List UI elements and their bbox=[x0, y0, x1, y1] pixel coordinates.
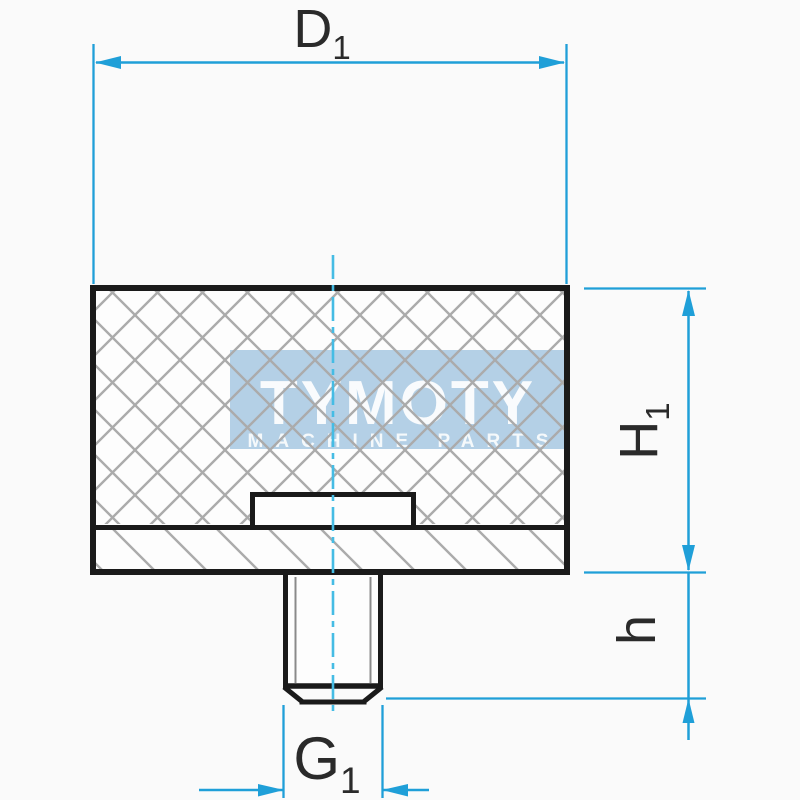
dimension-g1: G1 bbox=[199, 705, 429, 800]
d1-label: D1 bbox=[293, 0, 350, 66]
g1-label: G1 bbox=[293, 725, 360, 800]
g1-arrow-left bbox=[258, 784, 284, 797]
technical-drawing-page: TYMOTY MACHINE PARTS D1 bbox=[0, 0, 800, 800]
plate-hatch bbox=[96, 530, 564, 572]
d1-arrow-right bbox=[539, 56, 565, 69]
h1-arrow-bottom bbox=[682, 545, 695, 571]
h1-arrow-top bbox=[682, 290, 695, 316]
h1-label: H1 bbox=[609, 402, 676, 459]
part-body: TYMOTY MACHINE PARTS bbox=[90, 255, 570, 712]
buffer-cross-section-drawing: TYMOTY MACHINE PARTS D1 bbox=[0, 0, 800, 800]
d1-arrow-left bbox=[95, 56, 121, 69]
d1-extension-lines bbox=[94, 44, 567, 284]
h-label: h bbox=[607, 615, 667, 645]
dimension-d1: D1 bbox=[94, 0, 567, 284]
dimension-h1: H1 bbox=[584, 289, 706, 573]
g1-arrow-right bbox=[382, 784, 408, 797]
dimension-h: h bbox=[386, 573, 706, 741]
rubber-crosshatch bbox=[96, 291, 564, 524]
